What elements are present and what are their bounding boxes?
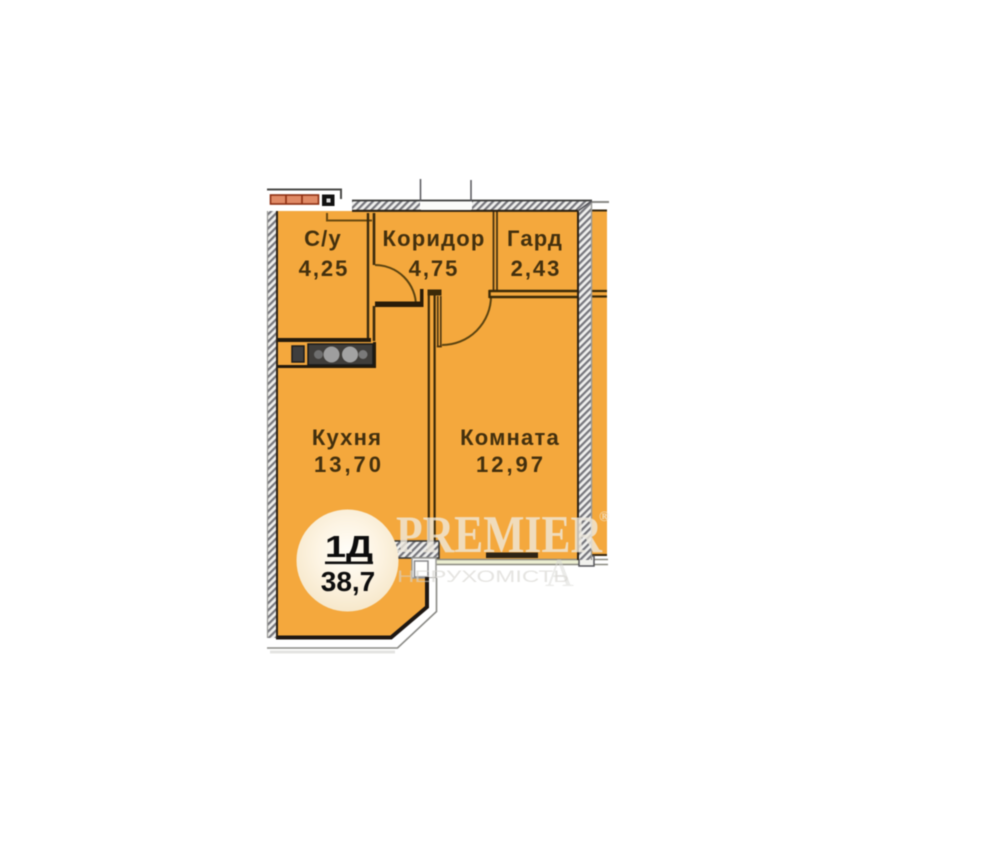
svg-text:1Д: 1Д [325, 529, 373, 564]
svg-text:Коридор: Коридор [382, 226, 485, 251]
svg-text:2,43: 2,43 [511, 256, 562, 281]
svg-text:38,7: 38,7 [321, 566, 376, 597]
svg-text:®: ® [599, 510, 610, 525]
svg-text:С/у: С/у [304, 226, 342, 251]
svg-text:НЕРУХОМІСТЬ: НЕРУХОМІСТЬ [397, 567, 569, 586]
svg-text:12,97: 12,97 [476, 452, 546, 477]
svg-text:4,25: 4,25 [299, 256, 350, 281]
svg-text:Гард: Гард [507, 226, 563, 251]
svg-text:Кухня: Кухня [312, 425, 382, 450]
svg-text:Комната: Комната [460, 425, 560, 450]
svg-text:4,75: 4,75 [409, 256, 460, 281]
svg-text:13,70: 13,70 [314, 452, 384, 477]
svg-text:А: А [545, 550, 574, 595]
